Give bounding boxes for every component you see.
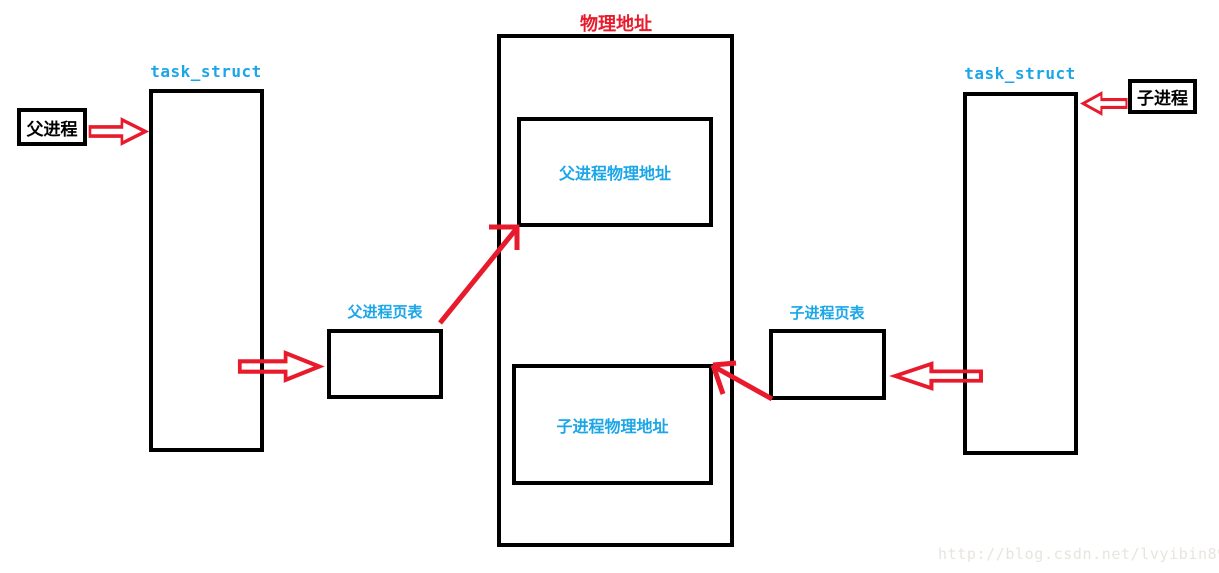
parent-physical-address-box: 父进程物理地址	[517, 117, 713, 227]
arrow-left-icon	[891, 361, 984, 391]
parent-page-table-title: 父进程页表	[325, 301, 445, 322]
child-page-table-box	[769, 329, 886, 400]
child-task-struct-box	[963, 92, 1078, 455]
arrow-right-icon	[237, 350, 323, 383]
arrow-up-left-icon	[703, 356, 781, 404]
parent-task-struct-box	[149, 89, 264, 452]
parent-page-table-box	[327, 329, 443, 399]
child-process-entry-box: 子进程	[1128, 79, 1197, 114]
parent-physical-address-label: 父进程物理地址	[559, 160, 671, 184]
child-process-entry-label: 子进程	[1137, 84, 1188, 109]
child-physical-address-label: 子进程物理地址	[556, 413, 668, 437]
child-physical-address-box: 子进程物理地址	[512, 364, 713, 485]
arrow-right-icon	[88, 117, 148, 146]
parent-process-entry-label: 父进程	[27, 115, 78, 140]
physical-address-title: 物理地址	[556, 10, 676, 36]
parent-process-entry-box: 父进程	[17, 108, 87, 146]
diagram-canvas: http://blog.csdn.net/lvyibin890 父进程 task…	[0, 0, 1219, 573]
child-page-table-title: 子进程页表	[767, 302, 887, 323]
arrow-left-icon	[1081, 91, 1128, 116]
parent-task-struct-title: task_struct	[146, 62, 266, 81]
child-task-struct-title: task_struct	[958, 64, 1082, 83]
arrow-up-right-icon	[433, 218, 525, 330]
watermark: http://blog.csdn.net/lvyibin890	[938, 545, 1219, 563]
